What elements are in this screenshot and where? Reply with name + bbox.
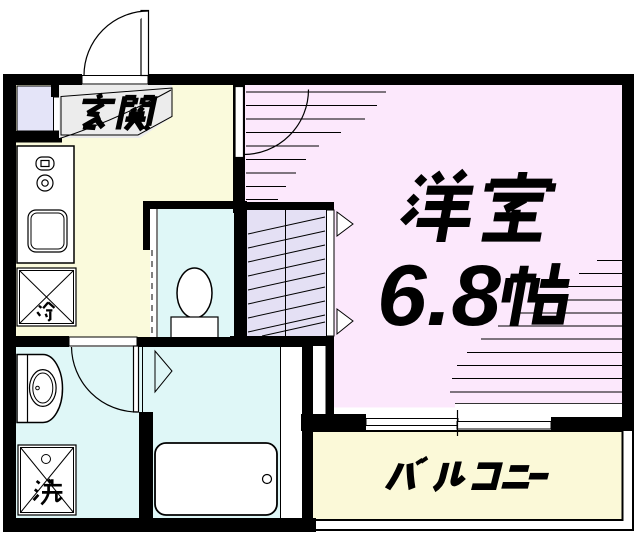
svg-text:6.8: 6.8	[377, 248, 501, 344]
